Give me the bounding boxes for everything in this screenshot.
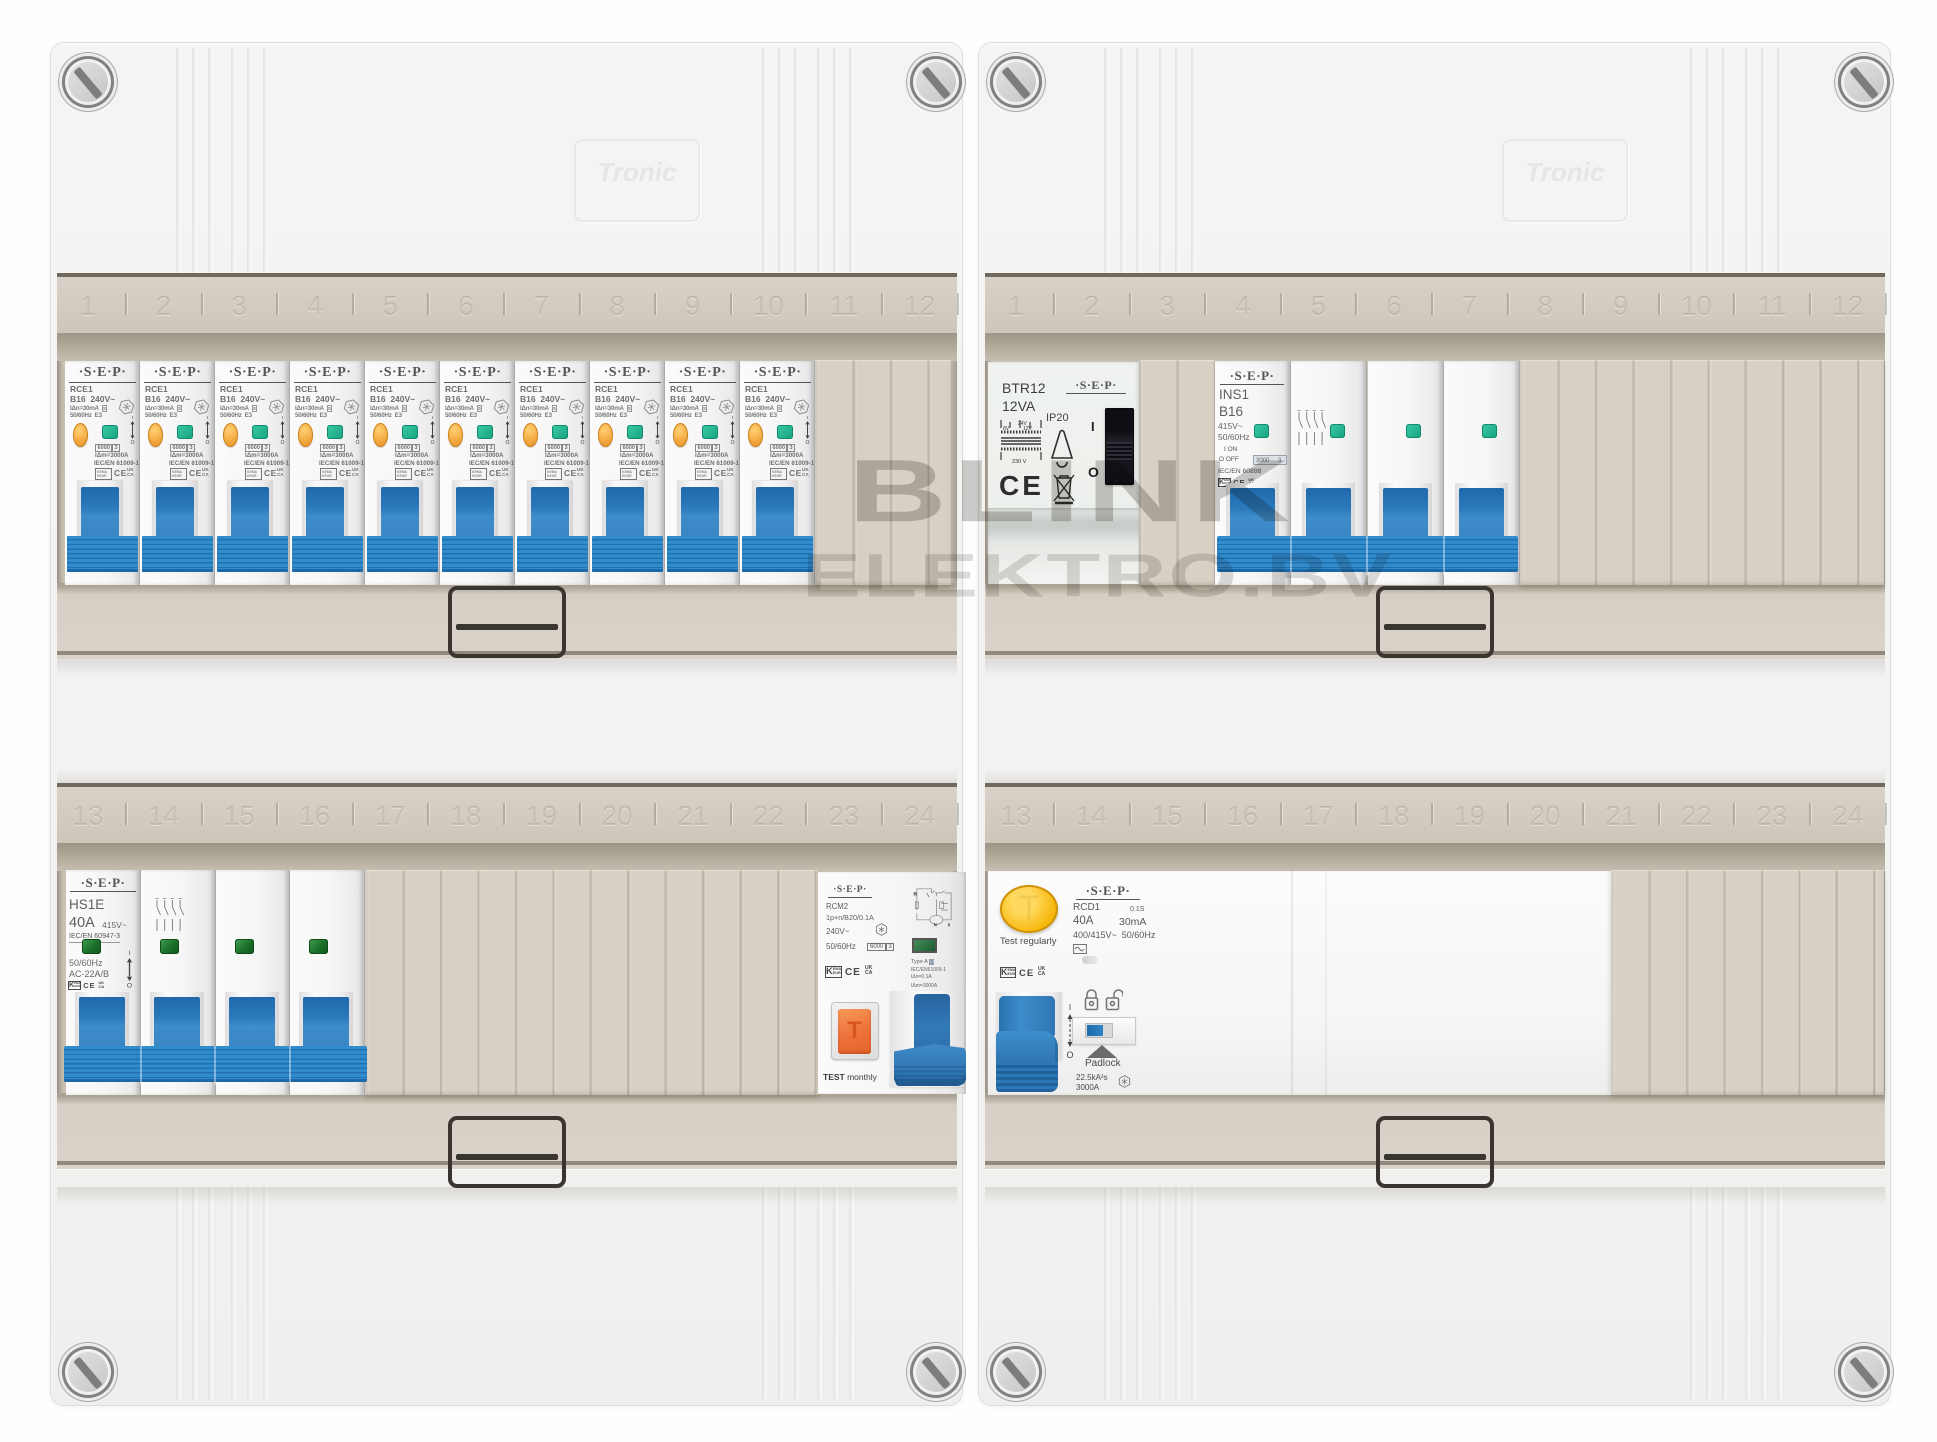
svg-text:I: I xyxy=(582,415,583,420)
svg-text:O: O xyxy=(356,440,360,444)
svg-text:I: I xyxy=(207,415,208,420)
svg-text:I: I xyxy=(807,415,808,420)
svg-text:I: I xyxy=(507,415,508,420)
svg-text:I: I xyxy=(132,415,133,420)
svg-text:O: O xyxy=(506,440,510,444)
svg-text:O: O xyxy=(656,440,660,444)
svg-text:O: O xyxy=(731,440,735,444)
svg-text:I: I xyxy=(432,415,433,420)
svg-text:O: O xyxy=(1066,1050,1073,1060)
svg-text:I: I xyxy=(357,415,358,420)
svg-text:2: 2 xyxy=(948,923,950,927)
svg-text:I: I xyxy=(282,415,283,420)
svg-text:N: N xyxy=(934,923,937,927)
svg-text:12V: 12V xyxy=(1023,426,1033,432)
svg-text:O: O xyxy=(281,440,285,444)
svg-text:I: I xyxy=(657,415,658,420)
svg-text:O: O xyxy=(806,440,810,444)
svg-text:O: O xyxy=(131,440,135,444)
svg-text:8V: 8V xyxy=(1003,426,1010,432)
svg-text:O: O xyxy=(127,983,132,990)
svg-text:I: I xyxy=(129,951,131,957)
svg-text:I: I xyxy=(1069,1003,1071,1012)
svg-text:O: O xyxy=(431,440,435,444)
svg-text:O: O xyxy=(206,440,210,444)
svg-text:I: I xyxy=(732,415,733,420)
svg-text:O: O xyxy=(581,440,585,444)
